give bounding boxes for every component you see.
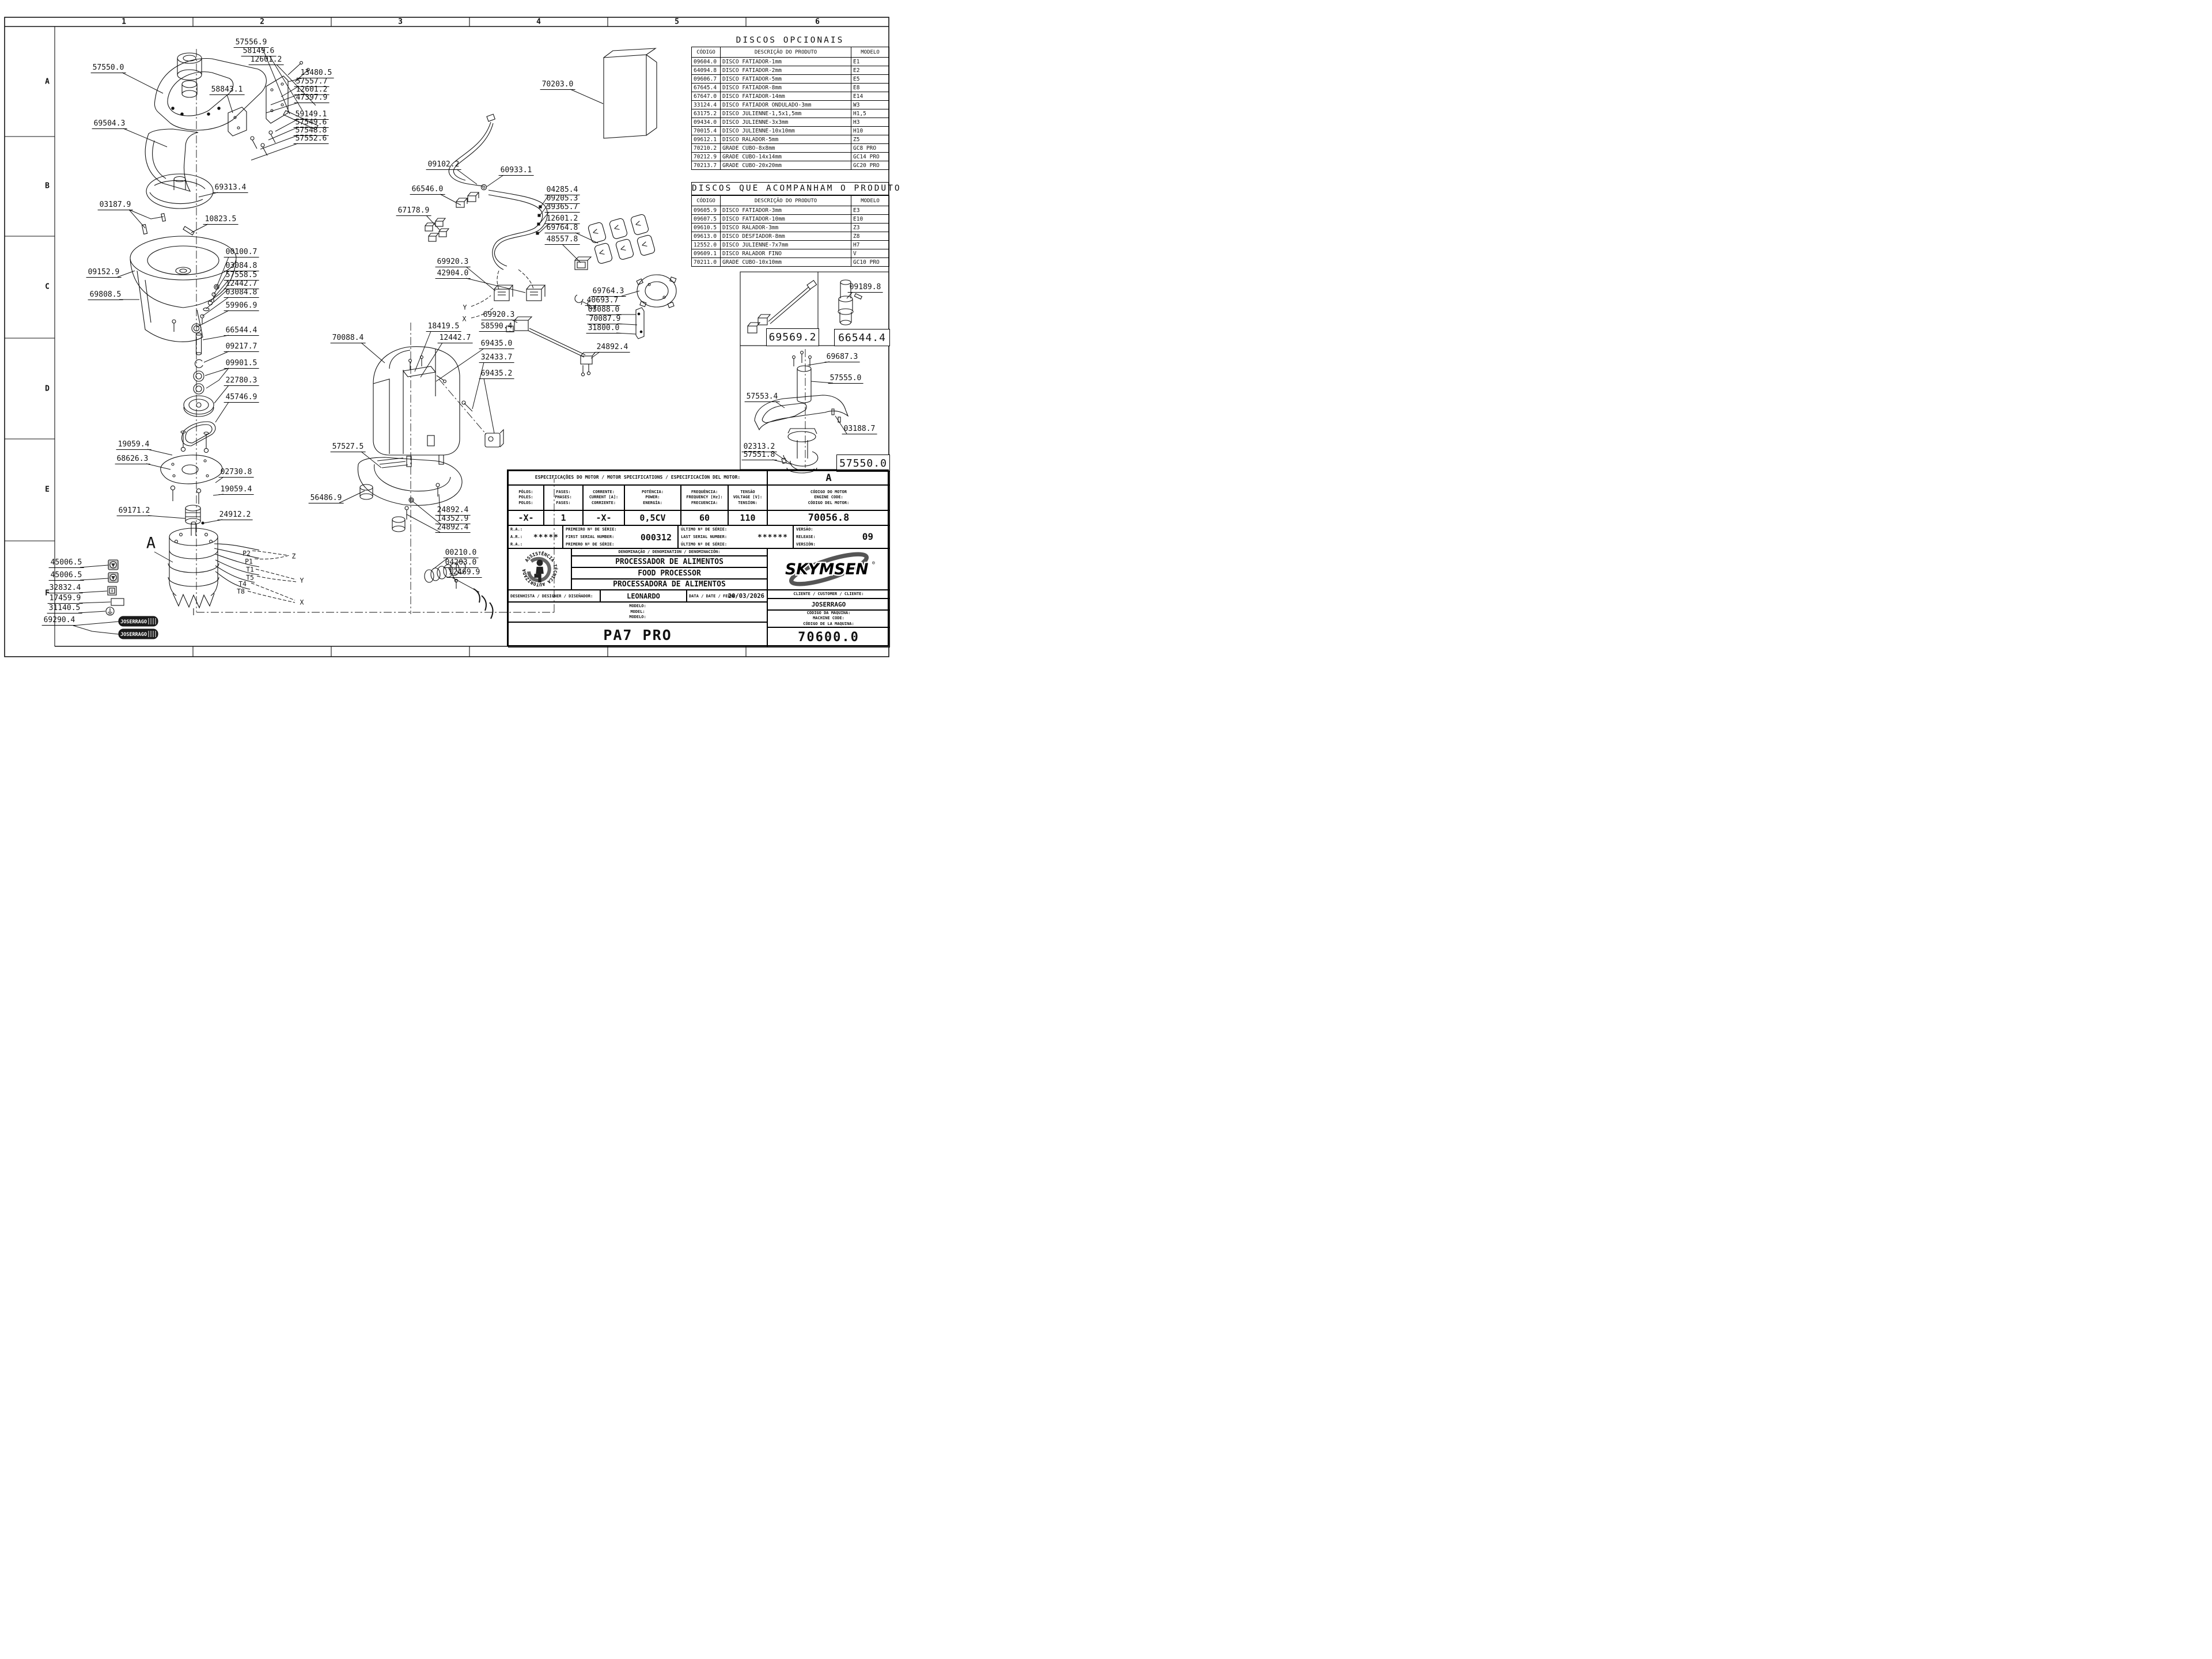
description-cell: DISCO FATIADOR-8mm [721,84,851,92]
part-label-18419.5: 18419.5 [426,323,461,332]
part-label-69435.0: 69435.0 [479,340,514,349]
part-label-24892.4: 24892.4 [595,343,630,353]
table-row: 67645.4DISCO FATIADOR-8mmE8 [692,84,889,92]
description-cell: DISCO FATIADOR-1mm [721,58,851,66]
code-cell: 09607.5 [692,215,721,224]
col-header-codigo: CÓDIGO [692,196,721,206]
description-cell: DISCO FATIADOR-5mm [721,75,851,84]
part-label-48557.8: 48557.8 [545,236,580,245]
denomination-title: DENOMINAÇÃO / DENOMINATION / DENOMINACIÓ… [618,550,720,555]
leader-line [562,244,581,263]
denomination-en: FOOD PROCESSOR [638,569,701,578]
table-row: 67647.0DISCO FATIADOR-14mmE14 [692,92,889,101]
authorized-service-emblem: ASSISTÊNCIA TÉCNICA AUTORIZADA [508,548,571,590]
part-label-24912.2: 24912.2 [218,511,253,520]
description-cell: DISCO FATIADOR-3mm [721,206,851,215]
leader-line [215,402,229,422]
leader-line [205,368,229,376]
description-cell: GRADE CUBO-14x14mm [721,153,851,161]
spec-label: FASES: [556,490,570,495]
description-cell: DISCO FATIADOR-14mm [721,92,851,101]
part-label-69504.3: 69504.3 [92,120,127,129]
code-cell: 09606.7 [692,75,721,84]
part-label-12442.7: 12442.7 [438,334,473,343]
model-cell: Z8 [851,232,889,241]
part-label-Z: Z [290,553,298,560]
table-row: 09609.1DISCO RALADOR FINOV [692,249,889,258]
first-serial-label-1: PRIMEIRO Nº DE SÉRIE: [566,527,617,532]
part-label-68626.3: 68626.3 [115,455,150,464]
model-cell: Z3 [851,224,889,232]
model-cell: H10 [851,127,889,135]
table-row: 09605.9DISCO FATIADOR-3mmE3 [692,206,889,215]
first-serial-label-2: FIRST SERIAL NUMBER: [566,535,614,540]
model-cell: E10 [851,215,889,224]
code-cell: 67647.0 [692,92,721,101]
leader-line [73,622,119,626]
spec-label: VOLTAGE [V]: [733,495,763,500]
part-label-03188.7: 03188.7 [842,425,877,434]
description-cell: DISCO JULIENNE-10x10mm [721,127,851,135]
spec-value-power: 0,5CV [639,513,665,523]
part-label-T1: T1 [244,566,256,573]
part-label-45006.5: 45006.5 [49,559,84,568]
table-row: 33124.4DISCO FATIADOR ONDULADO-3mmW3 [692,101,889,109]
part-label-12601.2: 12601.2 [249,56,284,65]
skymsen-logo: SKYMSEN ® [767,548,890,590]
zone-row-b: B [45,182,50,191]
spec-value-frequency: 60 [699,513,710,523]
part-label-09901.5: 09901.5 [224,359,259,369]
part-label-00210.0: 00210.0 [444,549,479,558]
leader-line [147,449,172,455]
model-cell: W3 [851,101,889,109]
code-cell: 09610.5 [692,224,721,232]
ra-label-3: R.A.: [510,542,522,547]
part-label-70203.0: 70203.0 [540,81,575,90]
version-label-1: VERSÃO: [796,527,813,532]
leader-line [251,143,298,160]
model-cell: Z5 [851,135,889,144]
part-label-22780.3: 22780.3 [224,377,259,386]
machine-code-label-3: CÓDIGO DE LA MAQUINA: [803,622,854,627]
part-label-09102.2: 09102.2 [426,161,461,170]
machine-code-label-1: CÓDIGO DA MÁQUINA: [807,611,851,616]
last-serial-label-2: LAST SERIAL NUMBER: [681,535,727,540]
version-label-3: VERSIÓN: [796,542,816,547]
model-label-2: MODEL: [630,609,645,615]
description-cell: DISCO FATIADOR ONDULADO-3mm [721,101,851,109]
model-cell: GC20 PRO [851,161,889,170]
leader-line [148,516,185,518]
part-label-69920.3: 69920.3 [435,258,471,267]
code-cell: 12552.0 [692,241,721,249]
spec-label: POLOS: [518,501,533,506]
part-label-31140.5: 31140.5 [47,604,82,613]
table-row: 09434.0DISCO JULIENNE-3x3mmH3 [692,118,889,127]
table-row: 70212.9GRADE CUBO-14x14mmGC14 PRO [692,153,889,161]
spec-label: FREQUÊNCIA: [691,490,718,495]
included-discs-title: DISCOS QUE ACOMPANHAM O PRODUTO [691,182,889,195]
leader-line [123,128,167,147]
spec-label: CORRENTE: [593,490,615,495]
spec-label: ENGINE CODE: [814,495,843,500]
leader-line [73,626,119,634]
part-label-09217.7: 09217.7 [224,343,259,352]
table-row: 70015.4DISCO JULIENNE-10x10mmH10 [692,127,889,135]
table-row: 70213.7GRADE CUBO-20x20mmGC20 PRO [692,161,889,170]
optional-discs-title: DISCOS OPCIONAIS [691,35,889,47]
model-cell: E2 [851,66,889,75]
leader-line [415,331,431,372]
drawing-sheet: { "frame": { "columns": ["1","2","3","4"… [0,0,892,669]
part-label-32433.7: 32433.7 [479,354,514,363]
leader-line [199,192,218,197]
code-cell: 33124.4 [692,101,721,109]
description-cell: DISCO FATIADOR-10mm [721,215,851,224]
code-cell: 70210.2 [692,144,721,153]
leader-line [452,577,479,592]
spec-label: POTÊNCIA: [642,490,664,495]
part-label-31800.0: 31800.0 [586,324,622,334]
table-row: 09612.1DISCO RALADOR-5mmZ5 [692,135,889,144]
leader-line [487,175,503,187]
zone-col-2: 2 [260,18,264,26]
spec-label: ENERGÍA: [643,501,662,506]
leader-line [484,378,494,433]
spec-label: PHASES: [555,495,572,500]
part-label-03084.8: 03084.8 [224,289,259,298]
detail-box-label-69569.2: 69569.2 [766,328,819,346]
leader-line [361,343,385,363]
leader-line [122,73,163,93]
table-row: 09607.5DISCO FATIADOR-10mmE10 [692,215,889,224]
code-cell: 70212.9 [692,153,721,161]
description-cell: DISCO JULIENNE-3x3mm [721,118,851,127]
code-cell: 09612.1 [692,135,721,144]
part-label-60933.1: 60933.1 [499,166,534,176]
part-label-69764.3: 69764.3 [591,287,626,297]
part-label-47397.9: 47397.9 [294,94,329,103]
model-label-1: MODELO: [629,604,646,609]
part-label-10823.5: 10823.5 [203,215,238,225]
model-cell: E8 [851,84,889,92]
ra-label-2: A.R.: [510,535,522,540]
part-label-12469.9: 12469.9 [447,569,482,578]
table-row: 64094.8DISCO FATIADOR-2mmE2 [692,66,889,75]
spec-label: FASES: [556,501,570,506]
leader-line [466,267,495,291]
part-label-59906.9: 59906.9 [224,302,259,311]
description-cell: DISCO FATIADOR-2mm [721,66,851,75]
part-label-40693.7: 40693.7 [585,297,620,306]
zone-row-c: C [45,283,50,291]
spec-label: FRECUENCIA: [691,501,718,506]
last-serial-label-1: ÚLTIMO Nº DE SÉRIE: [681,527,727,532]
part-label-Y: Y [461,304,469,311]
part-label-00100.7: 00100.7 [224,248,259,257]
part-label-69764.8: 69764.8 [545,224,580,233]
machine-code-label-2: MACHINE CODE: [813,616,844,621]
part-label-42904.0: 42904.0 [435,270,471,279]
model-cell: E1 [851,58,889,66]
leader-line [203,335,229,340]
last-serial-value: ****** [757,533,788,542]
leader-line [154,552,173,562]
col-header-codigo: CÓDIGO [692,47,721,58]
model-cell: H7 [851,241,889,249]
last-serial-label-3: ÚLTIMO Nº DE SÉRIE: [681,542,727,547]
description-cell: DISCO RALADOR-5mm [721,135,851,144]
leader-line [78,611,105,613]
model-cell: H3 [851,118,889,127]
model-cell: E3 [851,206,889,215]
date-value: 20/03/2026 [728,593,764,600]
col-header-modelo: MODELO [851,47,889,58]
part-label-69435.2: 69435.2 [479,370,514,379]
part-label-57551.8: 57551.8 [742,451,777,460]
part-label-39365.7: 39365.7 [545,203,580,213]
revision-letter: A [825,472,831,484]
description-cell: GRADE CUBO-10x10mm [721,258,851,267]
leader-line [129,210,164,219]
table-row: 09613.0DISCO DESFIADOR-8mmZ8 [692,232,889,241]
code-cell: 70015.4 [692,127,721,135]
version-label-2: RELEASE: [796,535,816,540]
part-label-58843.1: 58843.1 [210,86,245,95]
spec-label: PÓLOS: [518,490,533,495]
part-label-19059.4: 19059.4 [219,486,254,495]
part-label-P1: P1 [243,558,255,565]
spec-value-phases: 1 [560,513,566,523]
code-cell: 63175.2 [692,109,721,118]
leader-line [227,94,233,113]
part-label-69171.2: 69171.2 [117,507,152,516]
first-serial-value: 000312 [641,532,672,543]
part-label-02730.8: 02730.8 [219,468,254,478]
ra-label-1: R.A.: [510,527,522,532]
version-value: 09 [862,531,873,542]
part-label-T4: T4 [237,581,248,588]
leader-line [79,602,111,603]
code-cell: 09605.9 [692,206,721,215]
part-label-17459.9: 17459.9 [48,594,83,604]
spec-label: CÓDIGO DEL MOTOR: [808,501,850,506]
spec-value-current: -X- [596,513,611,523]
col-header-descricao: DESCRIÇÃO DO PRODUTO [721,196,851,206]
model-value: PA7 PRO [603,627,672,643]
part-label-32832.4: 32832.4 [48,584,83,593]
part-label-P2: P2 [241,550,252,557]
spec-label: CORRIENTE: [592,501,616,506]
part-label-69687.3: 69687.3 [825,353,860,362]
model-cell: GC8 PRO [851,144,889,153]
part-label-69808.5: 69808.5 [88,291,123,300]
model-label-3: MODELO: [629,615,646,620]
part-label-T8: T8 [235,588,247,595]
zone-row-d: D [45,385,50,393]
customer-name: JOSERRAGO [812,601,846,608]
leader-line [146,464,171,469]
zone-col-5: 5 [675,18,679,26]
leader-line [79,591,107,593]
customer-label: CLIENTE / CUSTOMER / CLIENTE: [793,592,863,597]
zone-col-4: 4 [536,18,541,26]
code-cell: 09609.1 [692,249,721,258]
denomination-es: PROCESSADORA DE ALIMENTOS [613,580,726,589]
description-cell: DISCO JULIENNE-1,5x1,5mm [721,109,851,118]
included-discs-table: DISCOS QUE ACOMPANHAM O PRODUTO CÓDIGO D… [691,182,889,267]
part-label-09189.8: 09189.8 [848,283,883,293]
part-label-24892.4: 24892.4 [435,524,471,533]
part-label-45746.9: 45746.9 [224,393,259,403]
description-cell: DISCO RALADOR FINO [721,249,851,258]
spec-label: FREQUENCY [Hz]: [686,495,722,500]
part-label-66546.0: 66546.0 [410,185,445,195]
part-label-03088.0: 03088.0 [586,306,622,315]
leader-line [196,310,229,327]
description-cell: GRADE CUBO-20x20mm [721,161,851,170]
model-cell: GC14 PRO [851,153,889,161]
brand-registered-mark: ® [872,560,874,566]
ra-value: ***** [533,533,559,542]
code-cell: 70211.0 [692,258,721,267]
spec-label: CURRENT [A]: [589,495,619,500]
part-label-09152.9: 09152.9 [86,268,122,278]
table-row: 12552.0DISCO JULIENNE-7x7mmH7 [692,241,889,249]
spec-value-voltage: 110 [740,513,755,523]
col-header-modelo: MODELO [851,196,889,206]
spec-label: TENSÍON: [738,501,757,506]
leader-line [591,352,600,358]
table-row: 63175.2DISCO JULIENNE-1,5x1,5mmH1,5 [692,109,889,118]
code-cell: 09434.0 [692,118,721,127]
part-label-70087.9: 70087.9 [588,315,623,324]
table-row: 70210.2GRADE CUBO-8x8mmGC8 PRO [692,144,889,153]
detail-box-label-66544.4: 66544.4 [834,329,890,346]
part-label-X: X [461,316,468,323]
motor-spec-title: ESPECIFICAÇÕES DO MOTOR / MOTOR SPECIFIC… [535,475,740,481]
machine-code-value: 70600.0 [798,630,859,645]
code-cell: 70213.7 [692,161,721,170]
table-row: 09606.7DISCO FATIADOR-5mmE5 [692,75,889,84]
description-cell: GRADE CUBO-8x8mm [721,144,851,153]
leader-line [466,278,525,293]
description-cell: DISCO JULIENNE-7x7mm [721,241,851,249]
part-label-67178.9: 67178.9 [396,207,431,216]
model-cell: GC10 PRO [851,258,889,267]
spec-label: TENSÃO [740,490,755,495]
part-label-57550.0: 57550.0 [91,64,126,73]
part-label-69920.3: 69920.3 [482,311,517,320]
model-cell: H1,5 [851,109,889,118]
part-label-56486.9: 56486.9 [309,494,344,503]
part-label-12601.2: 12601.2 [545,215,580,224]
part-label-X: X [298,599,306,606]
part-label-57553.4: 57553.4 [745,393,780,402]
leader-line [260,135,298,149]
zone-col-6: 6 [815,18,820,26]
designer-label: DESENHISTA / DESIGNER / DISEÑADOR: [510,594,593,599]
table-row: 09604.0DISCO FATIADOR-1mmE1 [692,58,889,66]
brand-text: SKYMSEN [785,560,869,578]
leader-line [191,224,208,233]
part-label-04203.0: 04203.0 [444,559,479,568]
spec-label: POLES: [518,495,533,500]
part-label-70088.4: 70088.4 [331,334,366,343]
barcode-text-1: JOSERRAGO [120,619,147,625]
code-cell: 67645.4 [692,84,721,92]
zone-row-e: E [45,486,50,494]
spec-value-poles: -X- [518,513,533,523]
leader-line [80,578,108,580]
part-label-57527.5: 57527.5 [331,443,366,452]
col-header-descricao: DESCRIÇÃO DO PRODUTO [721,47,851,58]
zone-col-1: 1 [122,18,126,26]
table-row: 09610.5DISCO RALADOR-3mmZ3 [692,224,889,232]
part-label-57555.0: 57555.0 [828,374,863,384]
part-label-45006.5: 45006.5 [49,571,84,581]
zone-col-3: 3 [398,18,403,26]
leader-line [215,477,224,483]
barcode-text-2: JOSERRAGO [120,632,147,638]
leader-line [129,210,145,228]
spec-label: CÓDIGO DO MOTOR [810,490,847,495]
optional-discs-table: DISCOS OPCIONAIS CÓDIGO DESCRIÇÃO DO PRO… [691,35,889,170]
code-cell: 64094.8 [692,66,721,75]
part-label-A: A [146,536,156,551]
leader-line [570,89,603,104]
part-label-66544.4: 66544.4 [224,327,259,336]
part-label-69290.4: 69290.4 [42,616,77,626]
part-label-58590.4: 58590.4 [479,323,514,332]
part-label-Y: Y [298,577,306,584]
designer-name: LEONARDO [627,592,660,600]
title-block: ESPECIFICAÇÕES DO MOTOR / MOTOR SPECIFIC… [507,469,889,646]
zone-row-a: A [45,78,50,86]
model-cell: E5 [851,75,889,84]
first-serial-label-3: PRIMERO Nº DE SÉRIE: [566,542,614,547]
spec-label: POWER: [645,495,660,500]
code-cell: 09613.0 [692,232,721,241]
leader-line [80,565,108,567]
part-label-57552.6: 57552.6 [294,135,329,144]
table-row: 70211.0GRADE CUBO-10x10mmGC10 PRO [692,258,889,267]
description-cell: DISCO DESFIADOR-8mm [721,232,851,241]
denomination-pt: PROCESSADOR DE ALIMENTOS [615,558,724,566]
code-cell: 09604.0 [692,58,721,66]
spec-value-engine-code: 70056.8 [808,512,850,524]
part-label-03187.9: 03187.9 [98,201,133,210]
part-label-19059.4: 19059.4 [116,441,151,450]
model-cell: V [851,249,889,258]
part-label-03084.8: 03084.8 [224,262,259,271]
part-label-69313.4: 69313.4 [213,184,248,193]
model-cell: E14 [851,92,889,101]
description-cell: DISCO RALADOR-3mm [721,224,851,232]
